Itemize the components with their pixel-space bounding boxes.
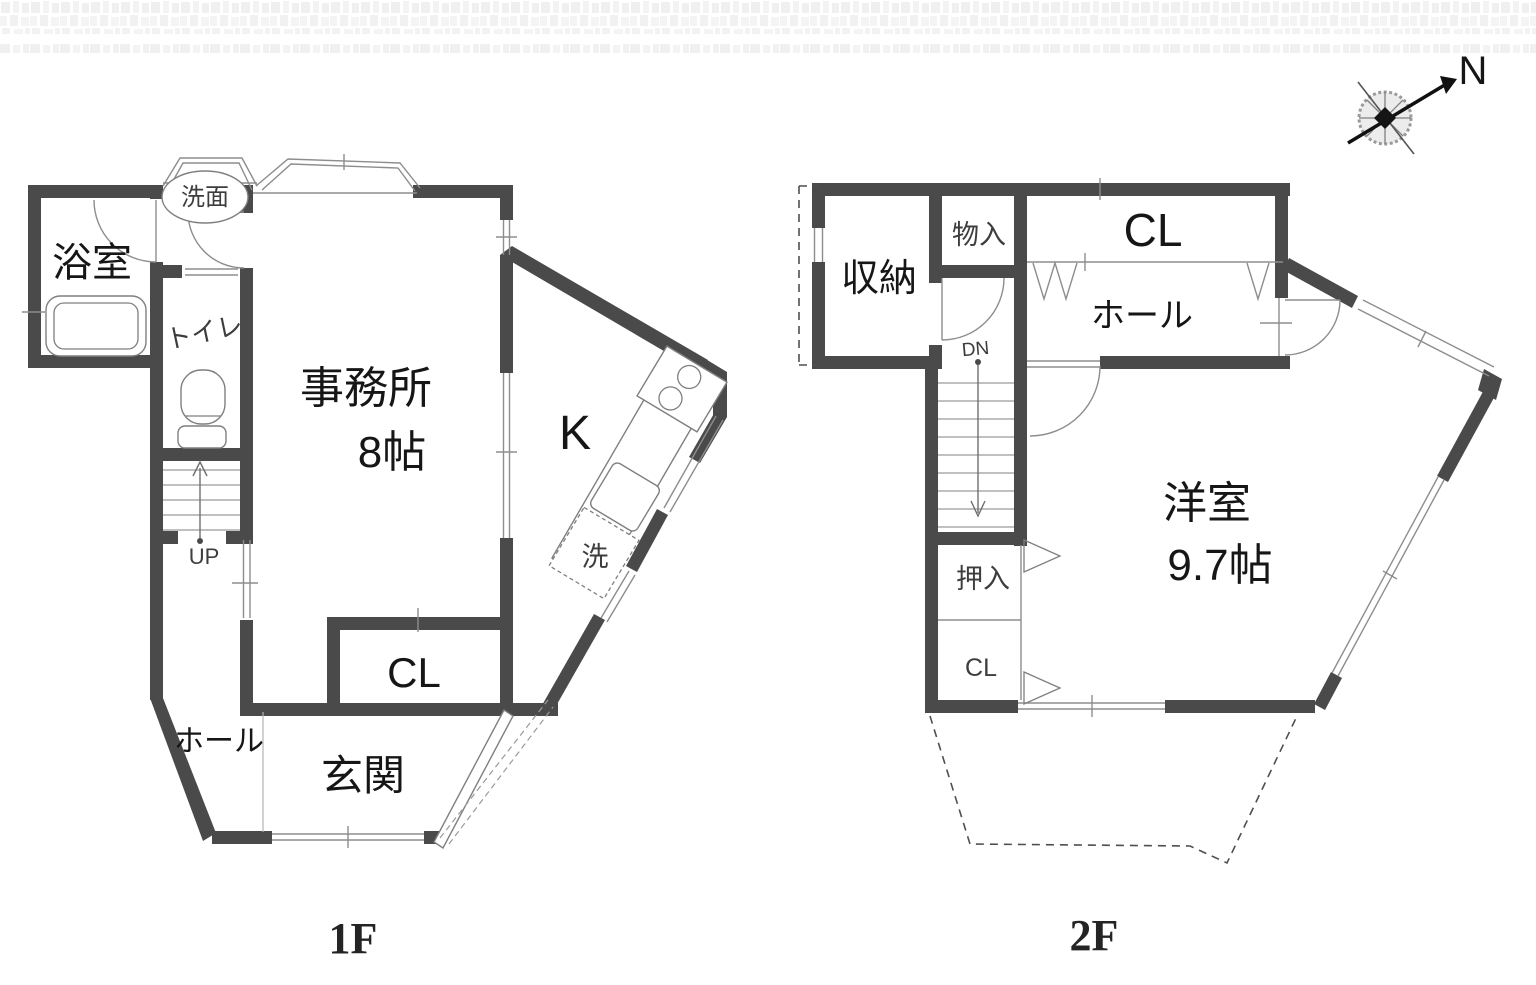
stairs-up-label: UP: [189, 544, 220, 569]
storage-label: 収納: [841, 258, 917, 300]
closet-2f-label: CL: [1124, 204, 1183, 256]
stairs-down-label: DN: [961, 338, 990, 361]
scan-noise-band: [0, 0, 1536, 56]
western-room-label: 洋室: [1163, 479, 1251, 528]
north-label: N: [1459, 49, 1488, 93]
laundry-label: 洗: [582, 542, 609, 572]
kitchen-label: K: [559, 407, 591, 460]
oshiire-closet-label: CL: [965, 654, 997, 682]
hall-2f-label: ホール: [1091, 297, 1193, 335]
small-storage-label: 物入: [952, 220, 1006, 250]
toilet-fixture: [178, 370, 226, 448]
office-size-label: 8帖: [358, 428, 426, 477]
washstand-label: 洗面: [181, 184, 229, 211]
bathroom-label: 浴室: [52, 241, 132, 285]
oshiire-label: 押入: [956, 564, 1010, 594]
floor2-label: 2F: [1070, 911, 1119, 960]
western-room-size-label: 9.7帖: [1167, 541, 1272, 590]
bathtub: [46, 296, 146, 356]
entrance-label: 玄関: [321, 752, 405, 799]
floor1-label: 1F: [329, 914, 378, 963]
hall-1f-label: ホール: [174, 725, 264, 758]
closet-1f-label: CL: [387, 649, 441, 696]
floor-plan-canvas: 浴室 洗面 トイレ 事務所 8帖 K 洗 CL ホール 玄関 UP 1F: [0, 0, 1536, 985]
floor-plan-page: 浴室 洗面 トイレ 事務所 8帖 K 洗 CL ホール 玄関 UP 1F: [0, 0, 1536, 985]
office-label: 事務所: [300, 364, 432, 413]
